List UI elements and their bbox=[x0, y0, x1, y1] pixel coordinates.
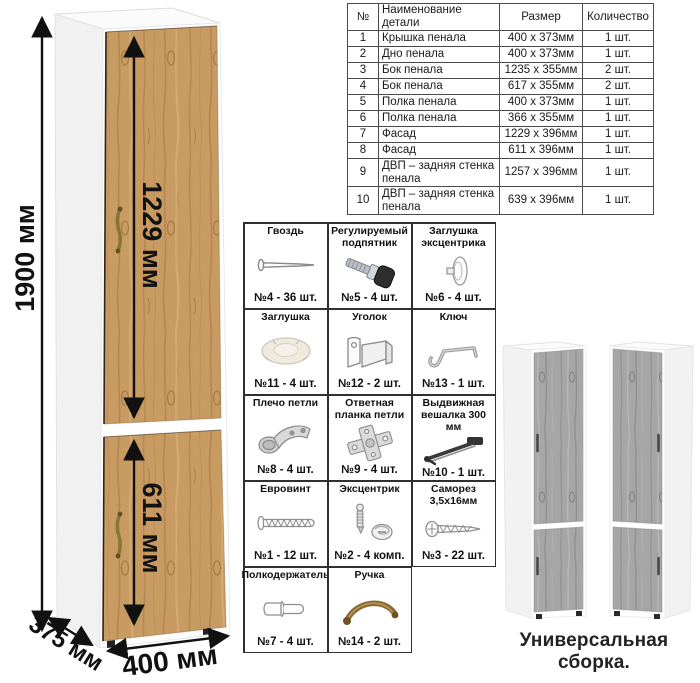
part-num: 10 bbox=[348, 187, 379, 215]
part-num: 9 bbox=[348, 159, 379, 187]
hardware-item-count: №7 - 4 шт. bbox=[257, 636, 313, 648]
variant-cabinet-right bbox=[610, 342, 693, 619]
part-qty: 2 шт. bbox=[583, 79, 654, 95]
hardware-item-euro-screw: Евровинт №1 - 12 шт. bbox=[244, 481, 328, 567]
hardware-item-self-tapping-screw: Саморез 3,5х16мм №3 - 22 шт. bbox=[412, 481, 496, 567]
parts-table-header: Размер bbox=[500, 4, 583, 31]
nail-icon bbox=[254, 238, 318, 292]
table-row: 4 Бок пенала 617 х 355мм 2 шт. bbox=[348, 79, 654, 95]
hardware-item-count: №1 - 12 шт. bbox=[254, 550, 317, 562]
hardware-item-cam-lock: Эксцентрик №2 - 4 комп. bbox=[328, 481, 412, 567]
part-name: Дно пенала bbox=[379, 47, 500, 63]
hardware-item-title: Саморез 3,5х16мм bbox=[413, 484, 494, 508]
part-qty: 1 шт. bbox=[583, 127, 654, 143]
part-name: Бок пенала bbox=[379, 63, 500, 79]
variant-cabinets-drawing bbox=[496, 332, 700, 624]
hardware-item-count: №9 - 4 шт. bbox=[341, 464, 397, 476]
hardware-item-hex-key: Ключ №13 - 1 шт. bbox=[412, 309, 496, 395]
part-num: 5 bbox=[348, 95, 379, 111]
pullout-rail-icon bbox=[421, 433, 487, 467]
width-dimension-label: 400 мм bbox=[120, 639, 219, 682]
hardware-item-count: №12 - 2 шт. bbox=[338, 378, 401, 390]
hardware-item-count: №11 - 4 шт. bbox=[254, 378, 316, 390]
part-qty: 1 шт. bbox=[583, 143, 654, 159]
cap-icon bbox=[253, 324, 319, 378]
hardware-item-corner-bracket: Уголок №12 - 2 шт. bbox=[328, 309, 412, 395]
cam-lock-icon bbox=[338, 496, 402, 550]
hardware-item-title: Полкодержатель bbox=[241, 570, 329, 582]
hinge-plate-icon bbox=[338, 422, 402, 465]
part-qty: 1 шт. bbox=[583, 159, 654, 187]
hardware-item-title: Гвоздь bbox=[267, 226, 304, 238]
cabinet-foot bbox=[654, 614, 660, 619]
hardware-item-count: №4 - 36 шт. bbox=[254, 292, 317, 304]
cam-cover-icon bbox=[422, 250, 486, 293]
hardware-item-title: Ответная планка петли bbox=[329, 398, 410, 422]
part-qty: 1 шт. bbox=[583, 111, 654, 127]
hardware-item-count: №3 - 22 шт. bbox=[422, 550, 485, 562]
self-tapping-screw-icon bbox=[422, 508, 486, 551]
hinge-arm-icon bbox=[254, 410, 318, 464]
hardware-item-count: №5 - 4 шт. bbox=[341, 292, 397, 304]
part-qty: 1 шт. bbox=[583, 187, 654, 215]
hardware-item-title: Выдвижная вешалка 300 мм bbox=[413, 398, 494, 433]
part-qty: 1 шт. bbox=[583, 31, 654, 47]
hardware-item-pullout-rail: Выдвижная вешалка 300 мм №10 - 1 шт. bbox=[412, 395, 496, 481]
variant-caption: Универсальная сборка. bbox=[488, 630, 700, 674]
part-size: 400 х 373мм bbox=[500, 95, 583, 111]
part-name: Фасад bbox=[379, 127, 500, 143]
hardware-item-title: Ключ bbox=[440, 312, 468, 324]
part-size: 611 х 396мм bbox=[500, 143, 583, 159]
table-row: 9 ДВП – задняя стенка пенала 1257 х 396м… bbox=[348, 159, 654, 187]
parts-table-header: Количество bbox=[583, 4, 654, 31]
part-size: 617 х 355мм bbox=[500, 79, 583, 95]
lower-door-dimension-label: 611 мм bbox=[137, 482, 167, 573]
parts-table-header: Наименование детали bbox=[379, 4, 500, 31]
part-size: 639 х 396мм bbox=[500, 187, 583, 215]
universal-assembly-figure bbox=[496, 332, 700, 624]
hardware-item-cam-cover: Заглушка эксцентрика №6 - 4 шт. bbox=[412, 223, 496, 309]
hardware-item-count: №13 - 1 шт. bbox=[422, 378, 485, 390]
cabinet-foot bbox=[576, 611, 582, 616]
part-num: 3 bbox=[348, 63, 379, 79]
part-size: 400 х 373мм bbox=[500, 31, 583, 47]
parts-table-header-row: № Наименование детали Размер Количество bbox=[348, 4, 654, 31]
parts-table-header: № bbox=[348, 4, 379, 31]
part-num: 8 bbox=[348, 143, 379, 159]
part-name: Фасад bbox=[379, 143, 500, 159]
hardware-item-title: Евровинт bbox=[260, 484, 311, 496]
table-row: 5 Полка пенала 400 х 373мм 1 шт. bbox=[348, 95, 654, 111]
hardware-item-hinge-plate: Ответная планка петли №9 - 4 шт. bbox=[328, 395, 412, 481]
part-name: ДВП – задняя стенка пенала bbox=[379, 159, 500, 187]
shelf-pin-icon bbox=[254, 582, 318, 636]
lower-door-edge-shadow bbox=[103, 437, 104, 641]
part-name: Полка пенала bbox=[379, 95, 500, 111]
hardware-item-title: Плечо петли bbox=[253, 398, 318, 410]
hardware-item-adjustable-foot: Регулируемый подпятник №5 - 4 шт. bbox=[328, 223, 412, 309]
table-row: 1 Крышка пенала 400 х 373мм 1 шт. bbox=[348, 31, 654, 47]
table-row: 2 Дно пенала 400 х 373мм 1 шт. bbox=[348, 47, 654, 63]
variant-cabinet-left bbox=[503, 342, 586, 619]
part-num: 6 bbox=[348, 111, 379, 127]
part-name: Бок пенала bbox=[379, 79, 500, 95]
part-qty: 1 шт. bbox=[583, 47, 654, 63]
cabinet-side-panel bbox=[55, 14, 103, 648]
main-cabinet-drawing: 1900 мм 1229 мм 611 мм 400 мм 375 мм bbox=[0, 0, 245, 683]
hardware-item-cap: Заглушка №11 - 4 шт. bbox=[244, 309, 328, 395]
cabinet-foot bbox=[614, 611, 620, 616]
part-size: 1229 х 396мм bbox=[500, 127, 583, 143]
part-name: Крышка пенала bbox=[379, 31, 500, 47]
hardware-item-nail: Гвоздь №4 - 36 шт. bbox=[244, 223, 328, 309]
part-size: 1235 х 355мм bbox=[500, 63, 583, 79]
parts-table: № Наименование детали Размер Количество … bbox=[347, 3, 654, 215]
height-dimension-label: 1900 мм bbox=[10, 204, 40, 312]
hex-key-icon bbox=[422, 324, 486, 378]
part-name: ДВП – задняя стенка пенала bbox=[379, 187, 500, 215]
table-row: 8 Фасад 611 х 396мм 1 шт. bbox=[348, 143, 654, 159]
hardware-item-count: №8 - 4 шт. bbox=[257, 464, 313, 476]
table-row: 10 ДВП – задняя стенка пенала 639 х 396м… bbox=[348, 187, 654, 215]
part-num: 1 bbox=[348, 31, 379, 47]
part-size: 366 х 355мм bbox=[500, 111, 583, 127]
table-row: 7 Фасад 1229 х 396мм 1 шт. bbox=[348, 127, 654, 143]
hardware-item-count: №6 - 4 шт. bbox=[425, 292, 481, 304]
part-name: Полка пенала bbox=[379, 111, 500, 127]
cabinet-foot bbox=[536, 614, 542, 619]
part-size: 400 х 373мм bbox=[500, 47, 583, 63]
hardware-item-title: Уголок bbox=[352, 312, 387, 324]
hardware-item-title: Заглушка эксцентрика bbox=[413, 226, 494, 250]
hardware-item-count: №10 - 1 шт. bbox=[422, 467, 485, 479]
hardware-item-title: Регулируемый подпятник bbox=[329, 226, 410, 250]
hardware-grid: Гвоздь №4 - 36 шт. Регулируемый подпятни… bbox=[243, 222, 496, 653]
part-qty: 2 шт. bbox=[583, 63, 654, 79]
hardware-item-shelf-pin: Полкодержатель №7 - 4 шт. bbox=[244, 567, 328, 653]
part-size: 1257 х 396мм bbox=[500, 159, 583, 187]
hardware-item-count: №2 - 4 комп. bbox=[334, 550, 404, 562]
adjustable-foot-icon bbox=[338, 250, 402, 293]
part-num: 7 bbox=[348, 127, 379, 143]
hardware-item-title: Заглушка bbox=[261, 312, 310, 324]
table-row: 6 Полка пенала 366 х 355мм 1 шт. bbox=[348, 111, 654, 127]
cabinet-foot bbox=[203, 628, 211, 635]
hardware-item-title: Ручка bbox=[354, 570, 384, 582]
handle-icon bbox=[336, 582, 404, 636]
hardware-item-handle: Ручка №14 - 2 шт. bbox=[328, 567, 412, 653]
table-row: 3 Бок пенала 1235 х 355мм 2 шт. bbox=[348, 63, 654, 79]
part-num: 4 bbox=[348, 79, 379, 95]
upper-door-dimension-label: 1229 мм bbox=[137, 181, 167, 289]
hardware-item-count: №14 - 2 шт. bbox=[338, 636, 401, 648]
hardware-item-title: Эксцентрик bbox=[339, 484, 399, 496]
hardware-item-hinge-arm: Плечо петли №8 - 4 шт. bbox=[244, 395, 328, 481]
part-qty: 1 шт. bbox=[583, 95, 654, 111]
main-cabinet-figure: 1900 мм 1229 мм 611 мм 400 мм 375 мм bbox=[0, 0, 245, 683]
cabinet-foot bbox=[107, 640, 115, 648]
corner-bracket-icon bbox=[338, 324, 402, 378]
euro-screw-icon bbox=[253, 496, 319, 550]
part-num: 2 bbox=[348, 47, 379, 63]
